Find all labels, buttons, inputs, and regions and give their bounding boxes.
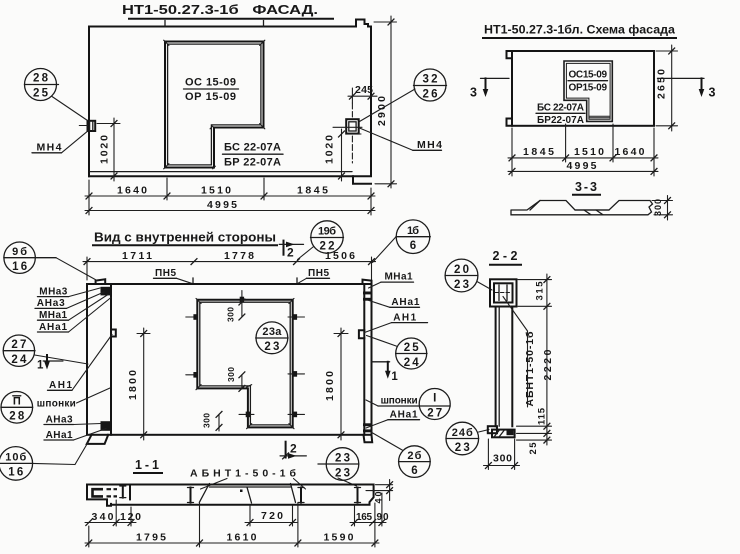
svg-text:НТ1-50.27.3-1б ФАСАД.: НТ1-50.27.3-1б ФАСАД. xyxy=(122,2,318,17)
svg-text:90: 90 xyxy=(377,512,389,523)
svg-text:2б: 2б xyxy=(407,450,421,462)
svg-text:25: 25 xyxy=(404,342,420,354)
svg-text:ОС15-09: ОС15-09 xyxy=(569,70,608,81)
svg-text:1510: 1510 xyxy=(574,146,604,158)
svg-text:I: I xyxy=(433,392,436,404)
svg-text:1-1: 1-1 xyxy=(135,458,159,472)
svg-text:340: 340 xyxy=(92,511,114,523)
svg-text:4995: 4995 xyxy=(207,199,237,211)
svg-text:ПН5: ПН5 xyxy=(155,268,176,279)
svg-text:1795: 1795 xyxy=(136,531,166,543)
svg-text:1020: 1020 xyxy=(99,135,111,164)
svg-text:2: 2 xyxy=(290,442,297,456)
svg-text:16: 16 xyxy=(8,467,23,479)
svg-text:120: 120 xyxy=(120,511,141,523)
svg-text:9б: 9б xyxy=(12,246,27,258)
svg-text:4995: 4995 xyxy=(567,160,597,172)
svg-text:10б: 10б xyxy=(5,452,26,464)
svg-text:АНа1: АНа1 xyxy=(46,430,73,441)
svg-text:25: 25 xyxy=(33,88,49,100)
svg-text:1510: 1510 xyxy=(201,185,231,197)
svg-text:1610: 1610 xyxy=(227,531,257,543)
svg-text:2-2: 2-2 xyxy=(493,249,518,263)
svg-text:27: 27 xyxy=(11,339,26,351)
svg-text:300: 300 xyxy=(493,453,512,465)
svg-text:23а: 23а xyxy=(262,326,282,338)
svg-text:300: 300 xyxy=(202,413,212,428)
svg-text:6: 6 xyxy=(410,240,416,252)
svg-text:16: 16 xyxy=(12,261,27,273)
svg-text:НТ1-50.27.3-1бл. Схема фасада: НТ1-50.27.3-1бл. Схема фасада xyxy=(484,23,675,37)
svg-text:165: 165 xyxy=(356,512,372,523)
svg-text:26: 26 xyxy=(423,89,438,101)
svg-text:АНа1: АНа1 xyxy=(391,297,419,308)
svg-text:27: 27 xyxy=(427,407,442,419)
svg-text:АНа3: АНа3 xyxy=(46,414,73,425)
svg-text:шпонки: шпонки xyxy=(37,399,76,410)
svg-text:28: 28 xyxy=(33,73,49,85)
svg-text:300: 300 xyxy=(653,199,663,216)
svg-text:20: 20 xyxy=(454,264,469,276)
svg-text:300: 300 xyxy=(226,307,236,322)
svg-text:1845: 1845 xyxy=(297,185,328,197)
svg-text:1020: 1020 xyxy=(324,135,336,164)
svg-text:АН1: АН1 xyxy=(393,312,416,323)
svg-text:АНа1: АНа1 xyxy=(39,322,67,333)
svg-text:300: 300 xyxy=(226,367,236,382)
svg-text:3: 3 xyxy=(470,86,477,100)
svg-text:25: 25 xyxy=(528,442,539,455)
svg-text:1711: 1711 xyxy=(122,250,152,262)
svg-text:2: 2 xyxy=(287,246,294,260)
svg-text:БР 22-07А: БР 22-07А xyxy=(224,157,281,169)
svg-text:МН4: МН4 xyxy=(417,139,442,151)
svg-text:6: 6 xyxy=(411,465,417,477)
svg-text:ПН5: ПН5 xyxy=(308,268,329,279)
svg-text:2650: 2650 xyxy=(656,69,668,99)
svg-text:АБНТ1-50-1б: АБНТ1-50-1б xyxy=(190,468,297,480)
svg-text:24: 24 xyxy=(11,354,27,366)
svg-text:П: П xyxy=(13,396,21,408)
svg-text:245: 245 xyxy=(355,84,373,96)
svg-text:19б: 19б xyxy=(318,226,336,238)
svg-text:1800: 1800 xyxy=(324,371,336,401)
svg-text:БР22-07А: БР22-07А xyxy=(537,115,584,126)
svg-text:Вид с внутренней стороны: Вид с внутренней стороны xyxy=(94,231,276,245)
svg-text:3: 3 xyxy=(709,86,716,100)
svg-text:МНа3: МНа3 xyxy=(39,286,67,297)
svg-text:МНа1: МНа1 xyxy=(39,310,67,321)
svg-text:23: 23 xyxy=(454,279,469,291)
svg-text:2220: 2220 xyxy=(542,349,554,380)
svg-text:23: 23 xyxy=(455,442,470,454)
svg-text:МН4: МН4 xyxy=(37,142,62,154)
svg-text:3-3: 3-3 xyxy=(575,180,597,194)
svg-text:АНа3: АНа3 xyxy=(37,298,65,309)
svg-text:1590: 1590 xyxy=(324,531,354,543)
svg-text:1б: 1б xyxy=(407,225,419,237)
svg-text:115: 115 xyxy=(537,407,548,425)
svg-text:ОР 15-09: ОР 15-09 xyxy=(185,91,236,103)
svg-text:БС 22-07А: БС 22-07А xyxy=(224,142,281,154)
svg-text:ОР15-09: ОР15-09 xyxy=(569,83,608,94)
svg-text:АБНТ1-50-1б: АБНТ1-50-1б xyxy=(524,331,536,407)
svg-text:24: 24 xyxy=(404,357,420,369)
svg-text:БС 22-07А: БС 22-07А xyxy=(537,103,584,114)
svg-text:720: 720 xyxy=(261,510,283,522)
svg-text:АН1: АН1 xyxy=(49,380,72,391)
svg-text:23: 23 xyxy=(335,452,350,464)
svg-text:МНа1: МНа1 xyxy=(385,271,413,282)
svg-text:28: 28 xyxy=(9,411,25,423)
svg-text:23: 23 xyxy=(264,341,279,353)
svg-text:АНа1: АНа1 xyxy=(390,410,418,421)
svg-text:1845: 1845 xyxy=(523,146,554,158)
svg-text:1640: 1640 xyxy=(615,146,645,158)
svg-text:1640: 1640 xyxy=(117,185,147,197)
svg-text:24б: 24б xyxy=(452,427,473,439)
svg-text:1: 1 xyxy=(391,371,398,383)
svg-text:1800: 1800 xyxy=(127,370,139,400)
svg-text:315: 315 xyxy=(535,281,546,301)
svg-text:шпонки: шпонки xyxy=(381,396,418,407)
svg-text:1778: 1778 xyxy=(224,250,254,262)
svg-text:32: 32 xyxy=(423,74,438,86)
svg-text:23: 23 xyxy=(335,467,350,479)
svg-text:1: 1 xyxy=(37,360,44,372)
svg-text:ОС 15-09: ОС 15-09 xyxy=(185,77,236,89)
